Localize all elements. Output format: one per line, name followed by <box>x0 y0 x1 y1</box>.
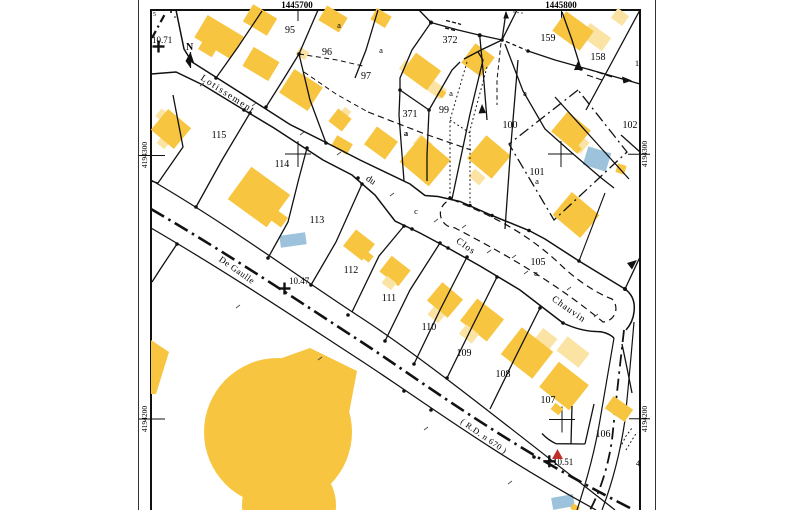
svg-text:10.47: 10.47 <box>289 276 310 286</box>
svg-text:105: 105 <box>531 257 546 268</box>
svg-text:97: 97 <box>361 71 371 82</box>
svg-text:a: a <box>337 20 341 30</box>
svg-text:372: 372 <box>443 35 458 46</box>
svg-text:113: 113 <box>310 215 325 226</box>
svg-text:1445800: 1445800 <box>545 0 577 10</box>
svg-text:114: 114 <box>275 159 290 170</box>
svg-text:159: 159 <box>541 33 556 44</box>
svg-text:a: a <box>449 88 453 98</box>
svg-text:158: 158 <box>591 52 606 63</box>
svg-text:102: 102 <box>623 120 638 131</box>
svg-text:371: 371 <box>403 109 418 120</box>
svg-text:110: 110 <box>422 322 437 333</box>
svg-text:100: 100 <box>503 120 518 131</box>
svg-text:95: 95 <box>285 25 295 36</box>
svg-text:106: 106 <box>596 429 611 440</box>
svg-text:10.71: 10.71 <box>152 35 172 45</box>
svg-text:1445700: 1445700 <box>281 0 313 10</box>
svg-text:a: a <box>534 268 538 278</box>
svg-text:4194300: 4194300 <box>140 142 149 169</box>
svg-text:c: c <box>414 206 418 216</box>
svg-text:109: 109 <box>457 348 472 359</box>
svg-text:115: 115 <box>212 130 227 141</box>
svg-text:96: 96 <box>322 47 332 58</box>
svg-text:111: 111 <box>382 293 396 304</box>
svg-text:a: a <box>379 45 383 55</box>
svg-text:N: N <box>186 42 194 53</box>
svg-text:107: 107 <box>541 395 556 406</box>
svg-text:108: 108 <box>496 369 511 380</box>
svg-text:a: a <box>523 88 527 98</box>
svg-text:a: a <box>535 176 539 186</box>
svg-text:5: 5 <box>153 12 156 18</box>
svg-text:1: 1 <box>635 58 639 68</box>
svg-text:112: 112 <box>344 265 359 276</box>
svg-text:99: 99 <box>439 105 449 116</box>
